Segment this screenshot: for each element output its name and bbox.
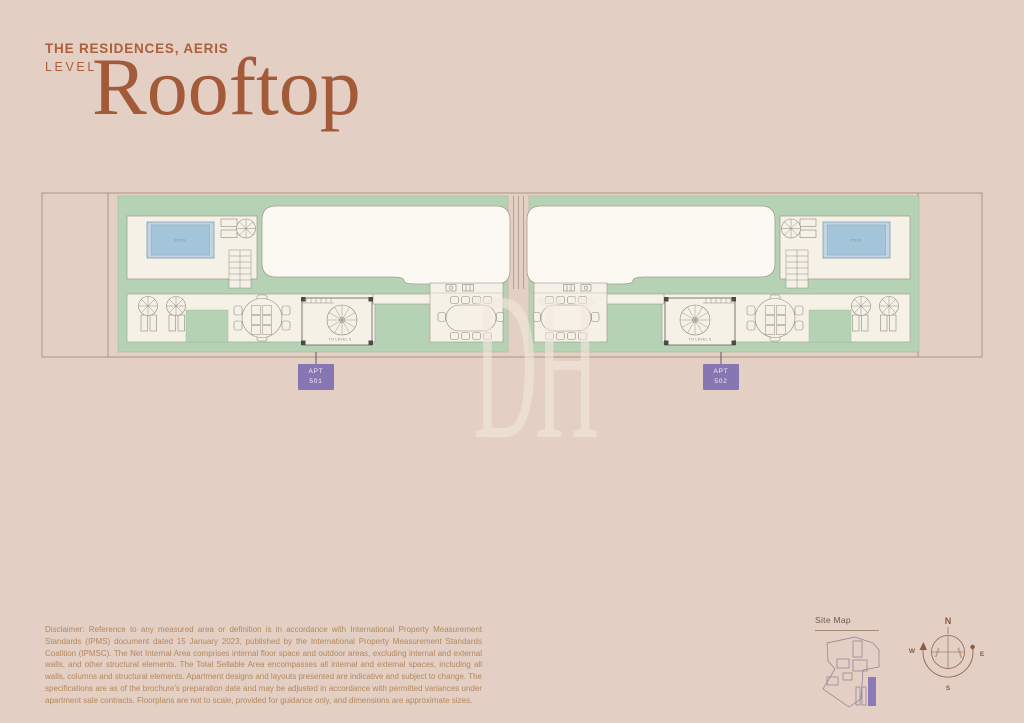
watermark: DH [473,249,597,484]
site-map-drawing [823,637,879,707]
apt-501-badge[interactable]: APT 501 [298,364,334,390]
compass-north: N [945,616,952,626]
compass-west-arrow [920,642,928,650]
pool-label-left: POOL [175,239,187,243]
roof-void [262,206,510,284]
planter [186,310,228,342]
deck-stairs [229,250,251,288]
stair-label-left: TO LEVEL 5 [329,338,352,342]
compass-sunrise: Sunrise [956,647,963,659]
apt-501-tag: APT [298,367,334,377]
compass-south: S [946,685,951,692]
apt-501-number: 501 [298,377,334,387]
apt-502-tag: APT [703,367,739,377]
pool-label-right: POOL [851,239,863,243]
compass: N Sunset Sunrise W E S [909,616,985,692]
compass-east: E [980,651,985,658]
apt-502-badge[interactable]: APT 502 [703,364,739,390]
compass-west: W [909,648,916,655]
site-map-highlight [868,677,876,706]
stair-label-right: TO LEVEL 5 [689,338,712,342]
apt-502-number: 502 [703,377,739,387]
disclaimer-text: Disclaimer: Reference to any measured ar… [45,624,482,707]
site-map-title: Site Map [815,615,879,631]
compass-east-dot [970,645,974,649]
apartment-501-plan [118,196,510,366]
compass-sunset: Sunset [934,647,941,658]
